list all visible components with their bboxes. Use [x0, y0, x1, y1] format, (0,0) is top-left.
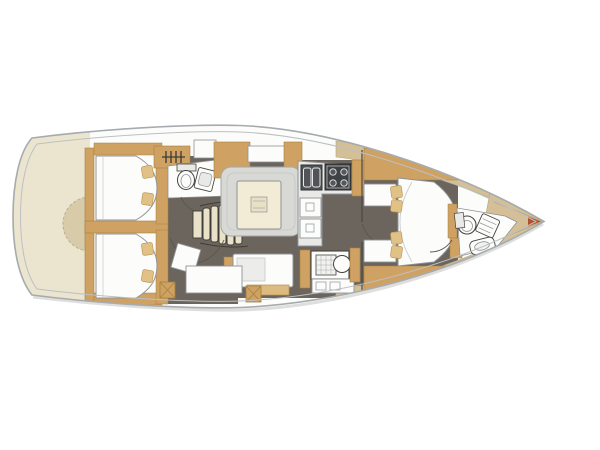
galley-stove [325, 164, 351, 190]
aft-shelf-top [94, 143, 162, 155]
yacht-floorplan-svg [0, 0, 600, 450]
aft-pillow-1 [141, 165, 154, 179]
nav-chair [334, 256, 351, 273]
layer-interior [12, 128, 543, 308]
nav-cabinet [312, 279, 354, 293]
fwd-toilet-tank [454, 213, 465, 229]
fwd-pillow-3 [390, 231, 402, 244]
stove-burner-1 [330, 169, 336, 175]
aft-lower-unit [186, 266, 242, 293]
stairs-side [193, 211, 202, 238]
fwd-pillow-4 [390, 245, 403, 258]
fwd-pillow-2 [390, 200, 402, 213]
aft-cabin-divider [85, 221, 168, 233]
aft-toilet-tank [177, 164, 196, 171]
page [0, 0, 600, 450]
stair-tread-1 [203, 208, 210, 240]
aft-pillow-3 [141, 242, 154, 255]
stair-tread-2 [211, 206, 218, 242]
stove-burner-4 [341, 180, 347, 186]
yacht-floorplan [0, 0, 600, 450]
stove-burner-2 [341, 169, 347, 175]
fwd-wardrobe-top [364, 148, 458, 180]
locker-a [194, 140, 216, 158]
galley-fridge-1 [300, 198, 321, 217]
saloon-table-leaf [251, 197, 267, 212]
fwd-pillow-1 [390, 185, 403, 198]
nav-wood-left [300, 250, 310, 288]
aft-toilet-bowl [178, 171, 195, 190]
aft-pillow-4 [141, 269, 154, 283]
locker-b [248, 146, 286, 162]
nav-wood-right [350, 248, 360, 282]
stove-burner-3 [330, 180, 336, 186]
aft-pillow-2 [141, 192, 154, 205]
galley-fridge-2 [300, 219, 321, 238]
